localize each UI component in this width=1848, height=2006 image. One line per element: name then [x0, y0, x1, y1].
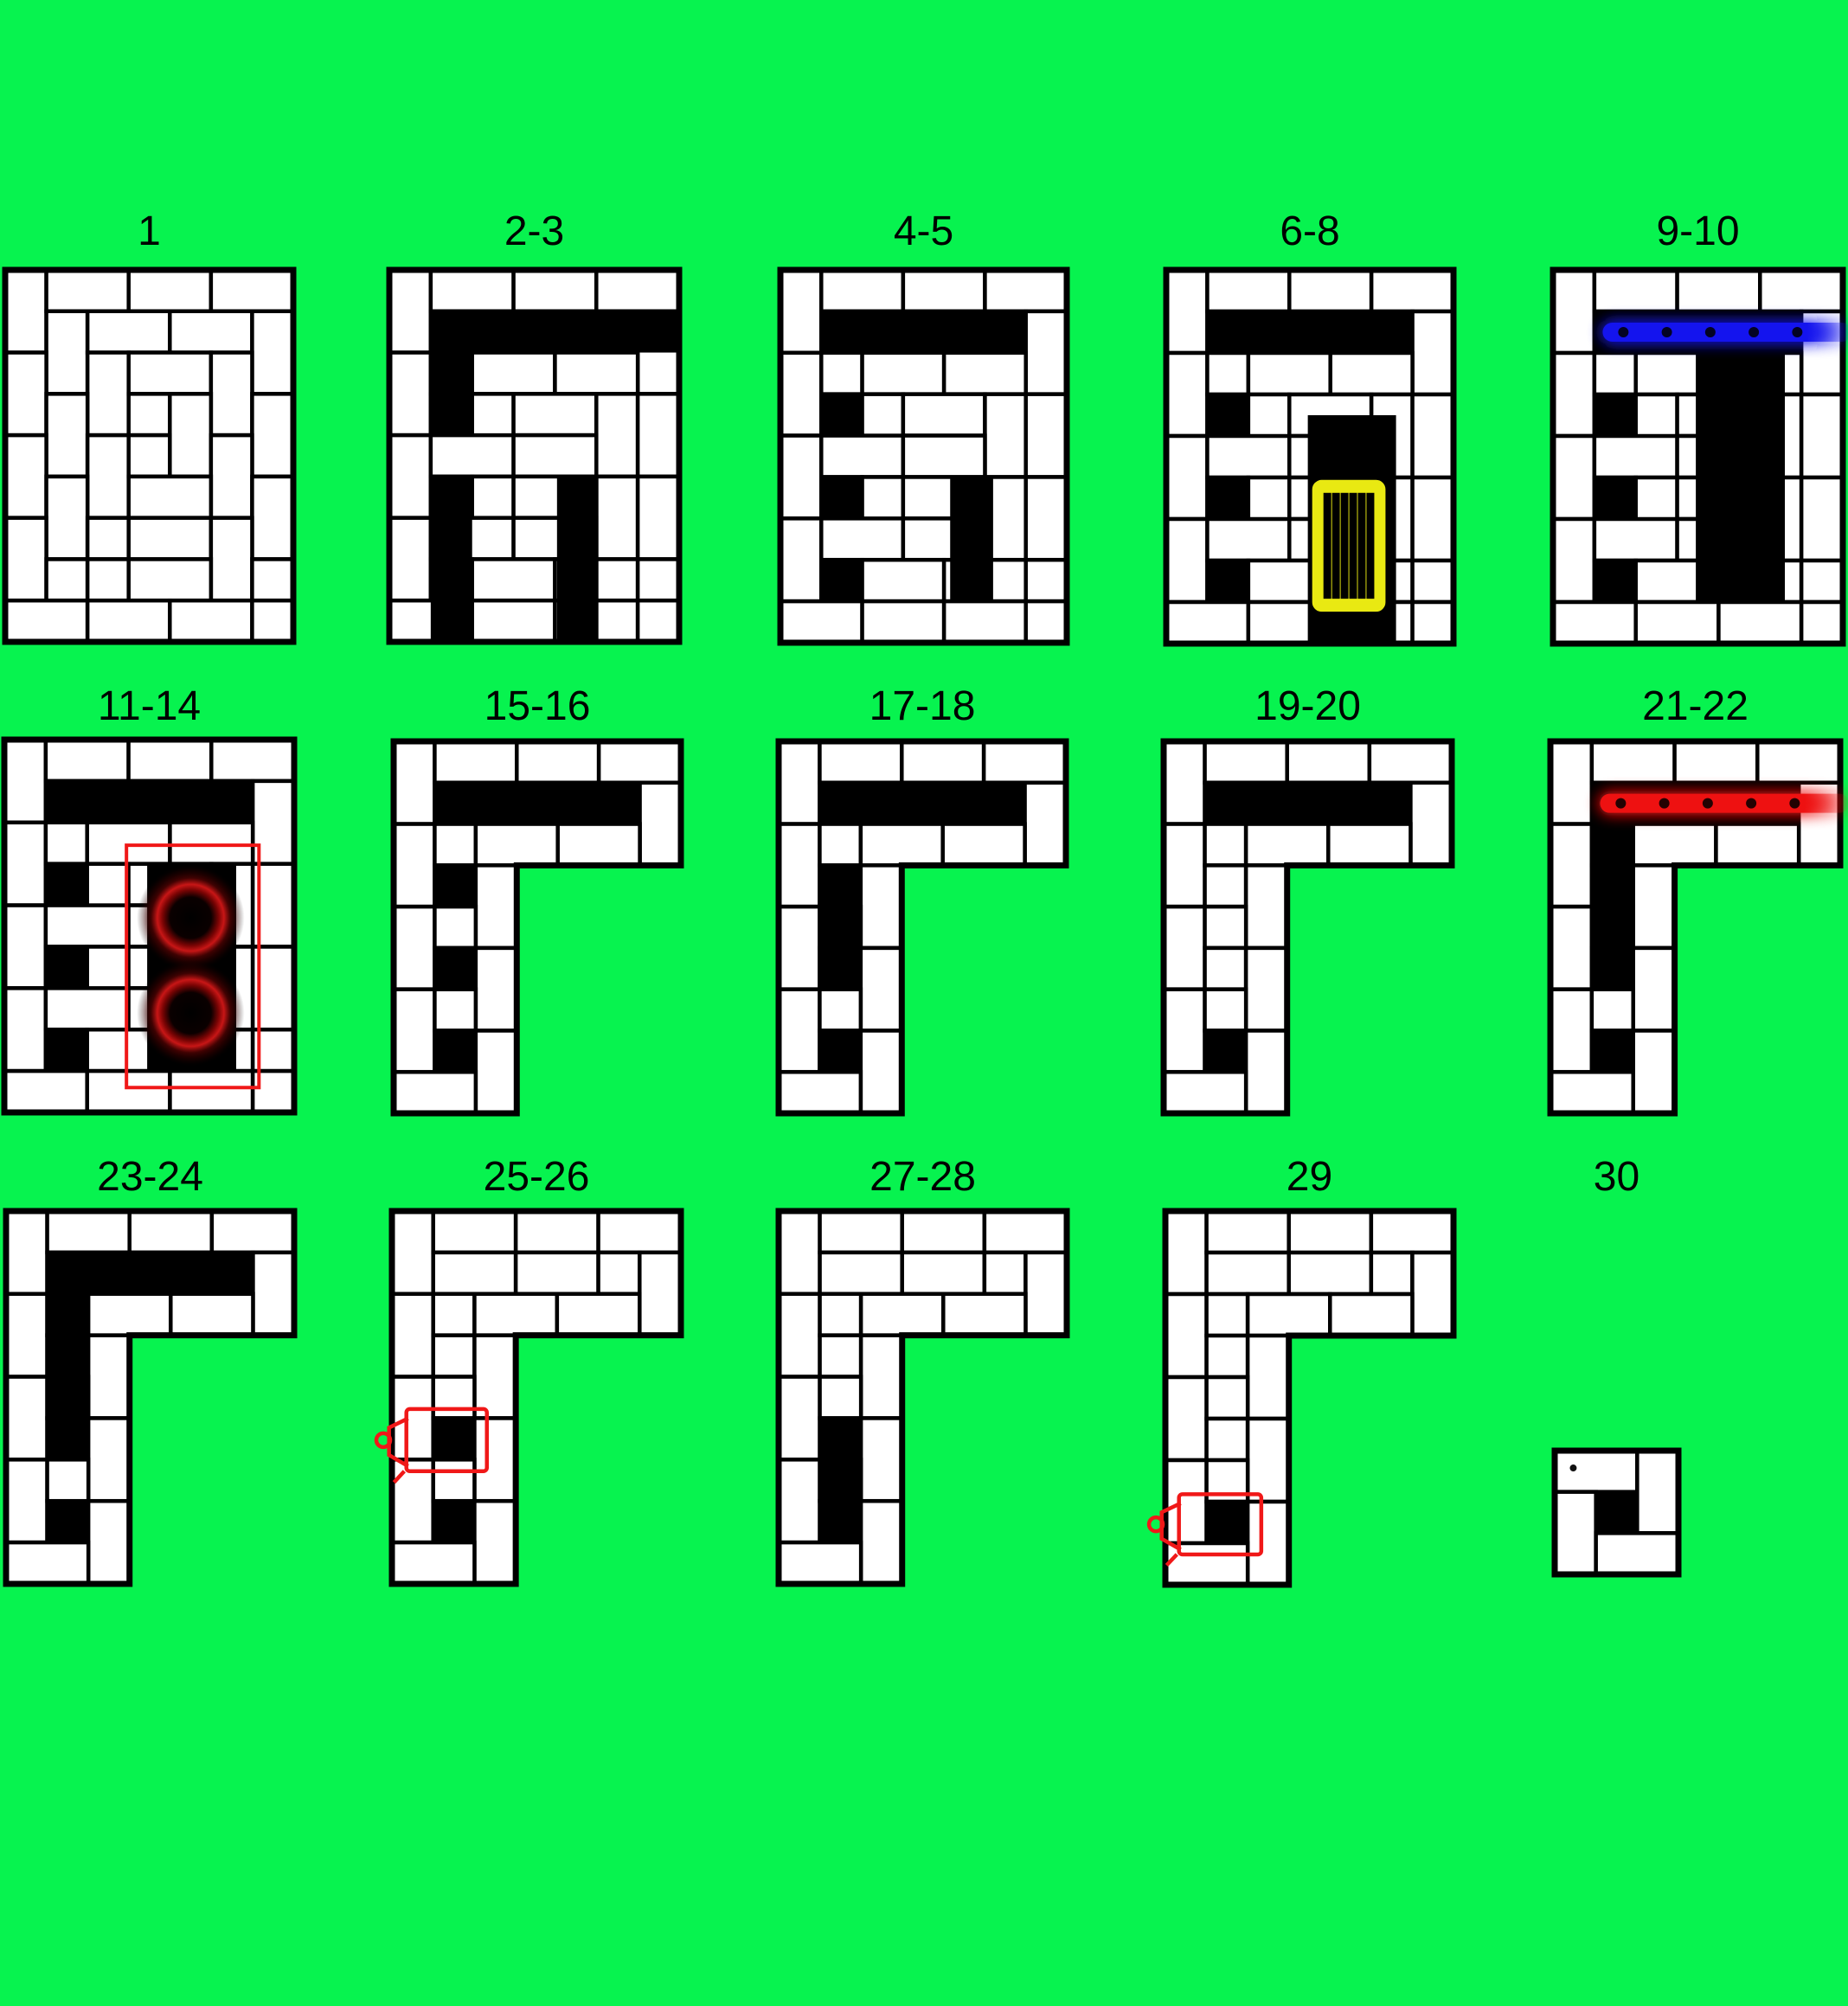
brick [476, 1030, 517, 1113]
brick [780, 436, 821, 519]
brick [130, 1211, 212, 1253]
brick [170, 1071, 253, 1112]
brick [819, 990, 860, 1031]
brick [46, 906, 129, 947]
brick [1246, 948, 1287, 1031]
grate-bar [1332, 493, 1340, 599]
brick [1553, 602, 1636, 644]
brick [1330, 1294, 1412, 1336]
course-23-24-diagram [6, 1211, 329, 1601]
course-27-28-diagram [779, 1211, 1101, 1601]
brick [4, 1071, 87, 1112]
flue-void [1592, 824, 1633, 990]
brick [47, 477, 88, 560]
brick [1207, 1336, 1248, 1377]
flue-void [48, 1253, 253, 1294]
brick [392, 1377, 433, 1460]
brick [557, 1294, 639, 1336]
fire-glow-icon [137, 959, 244, 1067]
flue-void [819, 1030, 860, 1072]
brick [211, 740, 294, 781]
brick [639, 1253, 681, 1336]
brick [434, 990, 475, 1031]
brick [984, 741, 1066, 783]
brick [4, 823, 46, 906]
brick [1331, 353, 1413, 394]
flue-void [46, 781, 253, 823]
brick [394, 824, 434, 907]
flue-void [1207, 394, 1248, 436]
flue-void [434, 948, 475, 990]
brick [1166, 353, 1207, 436]
brick [88, 1336, 130, 1419]
brick [820, 1294, 862, 1336]
flue-void [1596, 1492, 1638, 1534]
brick [474, 1336, 516, 1419]
bar-dot [1746, 798, 1756, 809]
brick [394, 907, 434, 990]
brick [129, 394, 170, 435]
brick [1553, 270, 1595, 353]
brick [1550, 741, 1592, 824]
brick [5, 270, 47, 353]
brick [780, 353, 821, 436]
brick [5, 353, 47, 436]
flue-void [820, 1418, 862, 1542]
brick [1207, 1377, 1248, 1419]
brick [1592, 990, 1633, 1031]
diagram-canvas: 12-34-56-89-1011-1415-1617-1819-2021-222… [0, 0, 1848, 2006]
brick [1801, 477, 1843, 561]
brick [1246, 1030, 1287, 1113]
brick [985, 1253, 1026, 1294]
brick [252, 477, 293, 560]
brick [433, 1294, 475, 1336]
brick [516, 1253, 598, 1294]
brick [779, 1542, 861, 1584]
brick [555, 353, 638, 394]
flue-void [1592, 1030, 1633, 1072]
brick [1410, 783, 1452, 866]
flue-void [1595, 394, 1636, 436]
brick [861, 948, 902, 1031]
brick [47, 270, 129, 311]
flue-void [819, 865, 860, 989]
bar-dot [1618, 327, 1628, 337]
brick [596, 270, 679, 311]
brick [87, 600, 170, 642]
brick [87, 823, 170, 864]
course-label-2-3: 2-3 [504, 209, 564, 254]
brick [476, 948, 517, 1031]
brick [1205, 948, 1247, 990]
brick [433, 1336, 475, 1377]
brick [780, 270, 821, 353]
brick [87, 353, 129, 436]
brick [46, 823, 87, 864]
brick [87, 311, 170, 353]
brick [1166, 602, 1248, 644]
flue-void [1595, 477, 1636, 519]
brick [211, 435, 253, 518]
brick [863, 601, 945, 643]
brick [599, 1211, 681, 1253]
grate-bar [1366, 493, 1374, 599]
brick [1553, 353, 1595, 436]
course-15-16-diagram [394, 741, 715, 1131]
brick [129, 518, 211, 560]
brick [433, 1459, 475, 1501]
brick [252, 311, 293, 394]
brick [1207, 436, 1289, 477]
brick [434, 741, 517, 783]
brick [1675, 741, 1758, 783]
brick [392, 1211, 433, 1294]
brick [87, 435, 129, 518]
brick [861, 865, 902, 948]
brick [779, 824, 819, 907]
bar-dot [1615, 798, 1626, 809]
brick [253, 1253, 294, 1336]
brick [474, 1501, 516, 1584]
brick [1595, 519, 1678, 561]
course-25-26-diagram [392, 1211, 715, 1601]
brick [1801, 561, 1843, 602]
bar-dot [1789, 798, 1800, 809]
brick [516, 1211, 598, 1253]
brick [596, 394, 638, 477]
brick [47, 394, 88, 477]
brick [944, 353, 1026, 394]
brick [943, 824, 1025, 866]
brick [434, 907, 475, 948]
brick [1371, 270, 1453, 311]
grate-bar [1341, 493, 1349, 599]
fire-glow-icon [137, 864, 244, 971]
brick [779, 990, 819, 1073]
brick [820, 1377, 862, 1419]
brick [1678, 270, 1761, 311]
brick [1555, 1492, 1596, 1574]
brick [472, 353, 555, 394]
course-label-11-14: 11-14 [98, 684, 201, 729]
brick [1636, 602, 1719, 644]
brick [389, 353, 431, 436]
brick [1371, 1253, 1413, 1294]
flue-void [434, 1030, 475, 1072]
brick [985, 270, 1067, 311]
course-1-diagram [5, 270, 328, 659]
brick [170, 600, 252, 642]
brick [1553, 436, 1595, 519]
brick [638, 394, 679, 477]
course-label-6-8: 6-8 [1280, 209, 1339, 254]
flue-void [819, 783, 1024, 824]
grate-bar [1357, 493, 1365, 599]
brick [1164, 990, 1205, 1073]
brick [820, 1253, 902, 1294]
brick [1207, 1419, 1248, 1460]
flue-void [434, 783, 639, 824]
bar-dot [1792, 327, 1802, 337]
brick [1413, 311, 1453, 394]
brick [820, 1211, 902, 1253]
bar-dot [1705, 327, 1716, 337]
brick [5, 600, 87, 642]
flue-void [557, 477, 599, 642]
brick [1246, 824, 1328, 866]
flue-void [431, 311, 679, 353]
brick [1026, 311, 1067, 394]
course-label-1: 1 [138, 209, 161, 254]
course-29-diagram [1165, 1211, 1488, 1602]
brick [1716, 824, 1799, 866]
brick [1248, 1502, 1289, 1585]
brick [47, 311, 88, 394]
brick [433, 1377, 475, 1419]
brick [1026, 560, 1067, 601]
brick [1328, 824, 1410, 866]
brick [1248, 353, 1331, 394]
brick [903, 436, 985, 477]
brick [780, 601, 863, 643]
grate-bar [1324, 493, 1331, 599]
brick [252, 394, 293, 477]
brick [861, 1294, 943, 1336]
brick [1164, 907, 1205, 990]
course-label-4-5: 4-5 [894, 209, 953, 254]
brick [474, 1294, 556, 1336]
brick [903, 394, 985, 436]
brick [389, 518, 431, 601]
course-19-20-diagram [1164, 741, 1486, 1131]
brick [1207, 1211, 1289, 1253]
course-label-27-28: 27-28 [869, 1155, 976, 1200]
brick [1555, 1451, 1637, 1492]
course-label-21-22: 21-22 [1642, 684, 1749, 729]
flue-void [431, 477, 472, 642]
brick [211, 518, 253, 601]
flue-void [46, 1029, 87, 1071]
brick [1165, 1460, 1207, 1543]
grate-bar [1350, 493, 1357, 599]
brick [1718, 602, 1801, 644]
brick [1592, 741, 1675, 783]
course-21-22-diagram [1550, 741, 1848, 1131]
brick [1205, 990, 1247, 1031]
brick [1550, 907, 1592, 990]
brick [944, 601, 1026, 643]
spot-dot [1569, 1464, 1576, 1471]
brick [1289, 1211, 1371, 1253]
brick [861, 1501, 902, 1584]
brick [389, 435, 431, 518]
brick [1633, 824, 1716, 866]
flue-void [821, 477, 862, 518]
brick [1205, 824, 1247, 866]
course-label-25-26: 25-26 [484, 1155, 590, 1200]
brick [129, 740, 212, 781]
brick [1026, 601, 1067, 643]
brick [431, 270, 514, 311]
flue-void [1207, 311, 1412, 353]
brick [476, 865, 517, 948]
course-17-18-diagram [779, 741, 1100, 1131]
course-30-diagram [1555, 1451, 1713, 1592]
flue-void [1696, 353, 1785, 602]
brick [431, 435, 514, 477]
brick [558, 824, 640, 866]
brick [1550, 1072, 1633, 1113]
brick [780, 518, 821, 601]
brick [1289, 270, 1371, 311]
brick [861, 824, 943, 866]
brick [5, 518, 47, 601]
brick [433, 1253, 516, 1294]
brick [819, 824, 860, 866]
brick [129, 353, 211, 394]
course-label-19-20: 19-20 [1254, 684, 1361, 729]
brick [1207, 1294, 1248, 1336]
brick [821, 353, 862, 394]
brick [88, 1418, 130, 1501]
brick [392, 1294, 433, 1377]
brick [1026, 477, 1067, 560]
brick [861, 1336, 902, 1419]
course-4-5-diagram [780, 270, 1101, 660]
brick [863, 353, 945, 394]
brick [4, 740, 46, 823]
brick [599, 741, 681, 783]
brick [1596, 1533, 1678, 1574]
brick [170, 394, 211, 477]
brick [1025, 1253, 1067, 1336]
flue-void [433, 1501, 475, 1542]
brick [861, 1418, 902, 1501]
brick [87, 1071, 170, 1112]
brick [88, 1501, 130, 1584]
brick [4, 906, 46, 989]
brick [596, 559, 638, 600]
course-label-23-24: 23-24 [97, 1155, 203, 1200]
brick [1371, 1211, 1453, 1253]
brick [779, 1459, 820, 1542]
brick [514, 270, 597, 311]
brick [985, 394, 1025, 477]
brick [1248, 1419, 1289, 1502]
brick [902, 1211, 985, 1253]
brick [861, 1030, 902, 1113]
course-11-14-diagram [4, 740, 329, 1130]
brick [212, 1211, 294, 1253]
brick [596, 477, 638, 560]
brick [1025, 783, 1066, 866]
brick [4, 988, 46, 1071]
bar-dot [1749, 327, 1759, 337]
brick [88, 1294, 170, 1336]
brick [1757, 741, 1840, 783]
brick [1370, 741, 1452, 783]
flue-void [1207, 561, 1248, 602]
brick [1205, 907, 1247, 948]
flue-void [48, 1501, 89, 1542]
brick [1633, 865, 1675, 948]
brick [1595, 353, 1636, 394]
brick [779, 1211, 820, 1294]
brick [170, 311, 252, 353]
flue-void [821, 394, 862, 436]
brick [1165, 1211, 1207, 1294]
brick [779, 741, 819, 824]
flue-void [1205, 783, 1411, 824]
brick [129, 477, 211, 518]
brick [517, 741, 599, 783]
brick [252, 559, 293, 600]
brick [6, 1211, 48, 1294]
brick [1207, 353, 1248, 394]
brick [1248, 1294, 1330, 1336]
brick [1801, 602, 1843, 644]
brick [1246, 865, 1287, 948]
bar-dot [1703, 798, 1713, 809]
brick [389, 270, 431, 353]
red-flue-bar [1600, 794, 1848, 813]
brick [1164, 741, 1205, 824]
brick [1205, 741, 1287, 783]
course-label-9-10: 9-10 [1656, 209, 1739, 254]
brick [46, 988, 129, 1029]
course-label-15-16: 15-16 [484, 684, 591, 729]
course-9-10-diagram [1553, 270, 1848, 661]
brick [1413, 602, 1453, 644]
brick [392, 1542, 474, 1584]
brick [1412, 1253, 1453, 1336]
brick [1413, 561, 1453, 602]
brick [779, 1294, 820, 1377]
brick [394, 741, 434, 824]
brick [599, 1253, 640, 1294]
brick [1801, 394, 1843, 477]
brick [129, 435, 170, 477]
flue-void [1207, 1502, 1248, 1543]
brick [514, 435, 597, 477]
brick [779, 1072, 861, 1113]
brick [821, 270, 903, 311]
brick [1166, 270, 1207, 353]
brick [46, 740, 129, 781]
brick [1205, 865, 1247, 907]
brick [170, 1294, 253, 1336]
brick [476, 824, 558, 866]
brick [638, 477, 679, 560]
brick [1165, 1294, 1207, 1377]
flue-void [433, 1418, 475, 1459]
brick [472, 559, 555, 600]
brick [129, 270, 211, 311]
brick [6, 1377, 48, 1460]
brick [943, 1294, 1025, 1336]
brick [514, 394, 597, 435]
brick [434, 824, 475, 866]
brick [1026, 394, 1067, 477]
brick [1413, 477, 1453, 561]
brick [1207, 270, 1289, 311]
brick [1550, 990, 1592, 1073]
brick [1633, 948, 1675, 1031]
flue-void [821, 311, 1025, 353]
flue-void [1207, 477, 1248, 519]
brick [1248, 1336, 1289, 1419]
